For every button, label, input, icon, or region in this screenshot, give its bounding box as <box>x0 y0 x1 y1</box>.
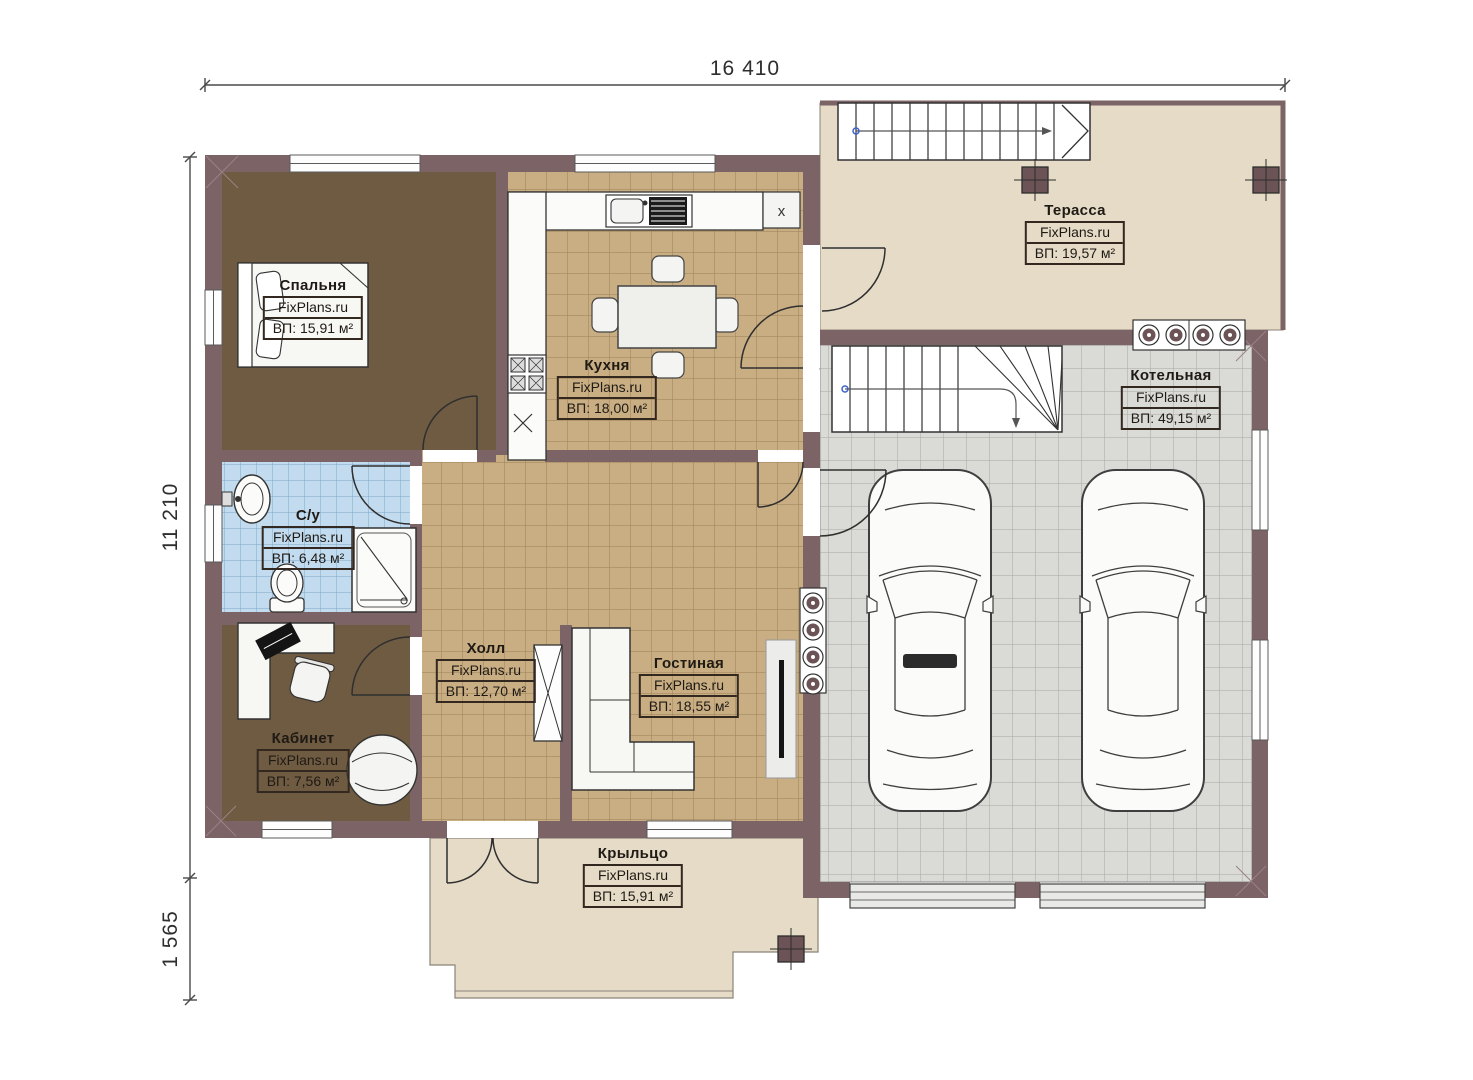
window <box>1252 430 1268 530</box>
room-area: ВП: 7,56 м² <box>259 770 348 791</box>
shower <box>352 528 416 612</box>
room-area: ВП: 6,48 м² <box>264 547 353 568</box>
car-1 <box>867 470 993 811</box>
room-title: С/у <box>262 507 355 524</box>
boiler-vents <box>1133 320 1245 350</box>
chair <box>652 256 684 282</box>
brand-watermark: FixPlans.ru <box>1123 388 1219 407</box>
brand-watermark: FixPlans.ru <box>559 378 655 397</box>
brand-watermark: FixPlans.ru <box>264 528 353 547</box>
window <box>205 290 222 345</box>
room-area: ВП: 19,57 м² <box>1027 242 1123 263</box>
brand-watermark: FixPlans.ru <box>1027 223 1123 242</box>
room-title: Котельная <box>1121 367 1221 384</box>
room-area: ВП: 15,91 м² <box>585 885 681 906</box>
room-title: Спальня <box>263 277 363 294</box>
tv-panel <box>766 640 796 778</box>
window <box>290 155 420 172</box>
room-area: ВП: 18,00 м² <box>559 397 655 418</box>
room-label-bedroom: Спальня FixPlans.ru ВП: 15,91 м² <box>263 277 363 340</box>
toilet <box>270 564 304 612</box>
window <box>205 505 222 562</box>
brand-watermark: FixPlans.ru <box>585 866 681 885</box>
armchair <box>347 735 417 805</box>
room-area: ВП: 18,55 м² <box>641 695 737 716</box>
dining-table <box>618 286 716 348</box>
chair <box>592 298 618 332</box>
room-label-boiler: Котельная FixPlans.ru ВП: 49,15 м² <box>1121 367 1221 430</box>
window <box>1252 640 1268 740</box>
room-label-terrace: Терасса FixPlans.ru ВП: 19,57 м² <box>1025 202 1125 265</box>
room-label-porch: Крыльцо FixPlans.ru ВП: 15,91 м² <box>583 845 683 908</box>
sink-icon <box>606 195 692 227</box>
room-title: Гостиная <box>639 655 739 672</box>
room-title: Кабинет <box>257 730 350 747</box>
wardrobe <box>534 645 562 741</box>
garage-door-1 <box>850 884 1015 908</box>
window <box>647 821 732 838</box>
window <box>575 155 715 172</box>
room-label-office: Кабинет FixPlans.ru ВП: 7,56 м² <box>257 730 350 793</box>
exterior-stairs <box>838 103 1090 160</box>
room-title: Кухня <box>557 357 657 374</box>
room-title: Терасса <box>1025 202 1125 219</box>
brand-watermark: FixPlans.ru <box>265 298 361 317</box>
room-title: Холл <box>436 640 536 657</box>
svg-text:x: x <box>778 203 786 220</box>
room-label-kitchen: Кухня FixPlans.ru ВП: 18,00 м² <box>557 357 657 420</box>
car-2 <box>1080 470 1206 811</box>
room-area: ВП: 15,91 м² <box>265 317 361 338</box>
interior-stairs <box>832 346 1062 432</box>
fridge-marker: x <box>763 192 800 228</box>
room-label-living: Гостиная FixPlans.ru ВП: 18,55 м² <box>639 655 739 718</box>
brand-watermark: FixPlans.ru <box>438 661 534 680</box>
dimension-total-width: 16 410 <box>710 57 780 81</box>
floor-plan-svg: x <box>0 0 1473 1080</box>
room-area: ВП: 49,15 м² <box>1123 407 1219 428</box>
dimension-main-depth: 11 210 <box>159 483 183 552</box>
floor-plan-page: { "brand": "FixPlans.ru", "dimensions": … <box>0 0 1473 1080</box>
dimension-porch-depth: 1 565 <box>159 910 183 968</box>
brand-watermark: FixPlans.ru <box>641 676 737 695</box>
brand-watermark: FixPlans.ru <box>259 751 348 770</box>
room-label-bathroom: С/у FixPlans.ru ВП: 6,48 м² <box>262 507 355 570</box>
flue-vents <box>800 588 826 694</box>
stove-icon <box>508 355 546 393</box>
room-area: ВП: 12,70 м² <box>438 680 534 701</box>
room-title: Крыльцо <box>583 845 683 862</box>
room-label-hall: Холл FixPlans.ru ВП: 12,70 м² <box>436 640 536 703</box>
garage-door-2 <box>1040 884 1205 908</box>
window <box>262 821 332 838</box>
